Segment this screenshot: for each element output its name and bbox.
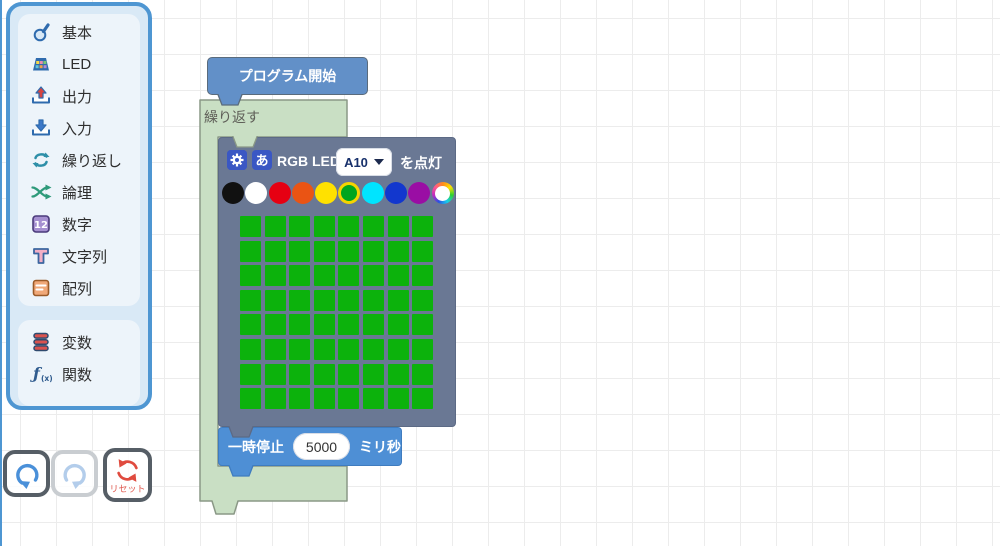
led-cell[interactable]: [289, 388, 310, 409]
undo-icon: [11, 458, 43, 490]
led-cell[interactable]: [338, 314, 359, 335]
pause-block-connector-tab: [228, 465, 254, 478]
array-icon: [30, 277, 52, 299]
sidebar-item-basic[interactable]: 基本: [18, 16, 140, 48]
led-cell[interactable]: [338, 388, 359, 409]
led-cell[interactable]: [363, 339, 384, 360]
sidebar-item-input[interactable]: 入力: [18, 112, 140, 144]
led-cell[interactable]: [314, 216, 335, 237]
led-cell[interactable]: [388, 388, 409, 409]
gear-icon[interactable]: [227, 150, 247, 170]
led-cell[interactable]: [412, 290, 433, 311]
led-cell[interactable]: [363, 364, 384, 385]
function-icon: ƒ (x): [30, 363, 52, 385]
led-cell[interactable]: [363, 388, 384, 409]
led-cell[interactable]: [289, 290, 310, 311]
led-cell[interactable]: [363, 265, 384, 286]
undo-button[interactable]: [3, 450, 50, 497]
kana-icon[interactable]: あ: [252, 150, 272, 170]
rgb-block-connector-tab: [228, 426, 254, 439]
led-cell[interactable]: [265, 339, 286, 360]
led-cell[interactable]: [388, 216, 409, 237]
led-grid: [240, 216, 433, 409]
led-cell[interactable]: [388, 364, 409, 385]
sidebar-item-string[interactable]: 文字列: [18, 240, 140, 272]
redo-icon: [59, 458, 91, 490]
svg-text:12: 12: [34, 220, 48, 231]
led-cell[interactable]: [314, 241, 335, 262]
led-cell[interactable]: [265, 241, 286, 262]
color-swatch[interactable]: [315, 182, 337, 204]
led-cell[interactable]: [388, 314, 409, 335]
led-cell[interactable]: [265, 388, 286, 409]
redo-button[interactable]: [51, 450, 98, 497]
chevron-down-icon: [374, 159, 384, 165]
led-cell[interactable]: [338, 339, 359, 360]
sidebar-item-array[interactable]: 配列: [18, 272, 140, 304]
port-dropdown[interactable]: A10: [336, 148, 392, 176]
rgb-led-label: RGB LED: [277, 153, 340, 169]
led-cell[interactable]: [265, 216, 286, 237]
led-cell[interactable]: [412, 388, 433, 409]
led-cell[interactable]: [388, 290, 409, 311]
led-cell[interactable]: [412, 339, 433, 360]
led-cell[interactable]: [412, 216, 433, 237]
toolbox-group-main: 基本 LED 出力 入力: [18, 14, 140, 306]
led-cell[interactable]: [314, 364, 335, 385]
repeat-block-label: 繰り返す: [204, 107, 260, 127]
sidebar-item-function[interactable]: ƒ (x) 関数: [18, 358, 140, 390]
variable-icon: [30, 331, 52, 353]
color-swatch[interactable]: [408, 182, 430, 204]
led-cell[interactable]: [240, 364, 261, 385]
svg-text:(x): (x): [41, 374, 52, 383]
led-cell[interactable]: [314, 265, 335, 286]
sidebar-item-loop[interactable]: 繰り返し: [18, 144, 140, 176]
led-cell[interactable]: [363, 290, 384, 311]
workspace-edge-line: [0, 0, 2, 546]
led-cell[interactable]: [412, 265, 433, 286]
led-cell[interactable]: [412, 241, 433, 262]
sidebar-item-variable[interactable]: 変数: [18, 326, 140, 358]
port-dropdown-value: A10: [344, 155, 368, 170]
led-cell[interactable]: [240, 265, 261, 286]
led-cell[interactable]: [412, 364, 433, 385]
led-cell[interactable]: [289, 216, 310, 237]
start-block-label: プログラム開始: [239, 66, 337, 86]
led-cell[interactable]: [338, 265, 359, 286]
shuffle-arrows-icon: [30, 181, 52, 203]
rainbow-color-swatch[interactable]: [432, 182, 454, 204]
led-cell[interactable]: [289, 364, 310, 385]
rainbow-swatch-center: [435, 186, 450, 201]
led-cell[interactable]: [363, 314, 384, 335]
reset-button-label: リセット: [109, 485, 145, 494]
loop-arrows-icon: [30, 149, 52, 171]
led-cell[interactable]: [289, 241, 310, 262]
output-tray-icon: [30, 85, 52, 107]
led-cell[interactable]: [265, 364, 286, 385]
led-cell[interactable]: [338, 216, 359, 237]
kana-icon-glyph: あ: [255, 154, 268, 167]
repeat-inner-connector-tab: [232, 136, 258, 149]
pause-block-label: 一時停止: [228, 437, 284, 457]
input-tray-icon: [30, 117, 52, 139]
hand-icon: [30, 21, 52, 43]
start-block[interactable]: プログラム開始: [207, 57, 368, 95]
led-cell[interactable]: [314, 314, 335, 335]
sidebar-item-number[interactable]: 12 数字: [18, 208, 140, 240]
gear-icon-glyph: [227, 150, 247, 170]
toolbox-group-advanced: 変数 ƒ (x) 関数: [18, 320, 140, 406]
led-cell[interactable]: [338, 241, 359, 262]
led-cell[interactable]: [240, 290, 261, 311]
led-cell[interactable]: [314, 290, 335, 311]
led-cell[interactable]: [240, 216, 261, 237]
reset-icon: [114, 457, 141, 484]
led-cell[interactable]: [388, 339, 409, 360]
led-cell[interactable]: [388, 241, 409, 262]
led-cell[interactable]: [388, 265, 409, 286]
color-swatch[interactable]: [222, 182, 244, 204]
led-cell[interactable]: [314, 388, 335, 409]
color-swatch[interactable]: [362, 182, 384, 204]
led-cell[interactable]: [240, 314, 261, 335]
text-icon: [30, 245, 52, 267]
color-swatch[interactable]: [338, 182, 360, 204]
led-cell[interactable]: [338, 364, 359, 385]
reset-button[interactable]: リセット: [103, 448, 152, 502]
color-swatch[interactable]: [385, 182, 407, 204]
led-cell[interactable]: [314, 339, 335, 360]
sidebar-item-logic[interactable]: 論理: [18, 176, 140, 208]
led-matrix-icon: [30, 53, 52, 75]
sidebar-item-led[interactable]: LED: [18, 48, 140, 80]
toolbox: 基本 LED 出力 入力: [6, 2, 152, 410]
led-cell[interactable]: [363, 241, 384, 262]
led-cell[interactable]: [240, 339, 261, 360]
color-swatch[interactable]: [245, 182, 267, 204]
rgb-led-suffix-label: を点灯: [400, 153, 442, 173]
led-cell[interactable]: [265, 314, 286, 335]
sidebar-item-output[interactable]: 出力: [18, 80, 140, 112]
color-swatch[interactable]: [292, 182, 314, 204]
led-cell[interactable]: [240, 241, 261, 262]
pause-value-field[interactable]: 5000: [293, 433, 350, 460]
led-cell[interactable]: [289, 265, 310, 286]
number-icon: 12: [30, 213, 52, 235]
led-cell[interactable]: [363, 216, 384, 237]
led-cell[interactable]: [289, 339, 310, 360]
start-block-connector-tab: [217, 94, 243, 107]
pause-unit-label: ミリ秒: [359, 437, 401, 457]
led-cell[interactable]: [265, 265, 286, 286]
led-cell[interactable]: [289, 314, 310, 335]
led-cell[interactable]: [338, 290, 359, 311]
color-swatch[interactable]: [269, 182, 291, 204]
led-cell[interactable]: [265, 290, 286, 311]
led-cell[interactable]: [240, 388, 261, 409]
color-palette: [222, 181, 454, 205]
led-cell[interactable]: [412, 314, 433, 335]
